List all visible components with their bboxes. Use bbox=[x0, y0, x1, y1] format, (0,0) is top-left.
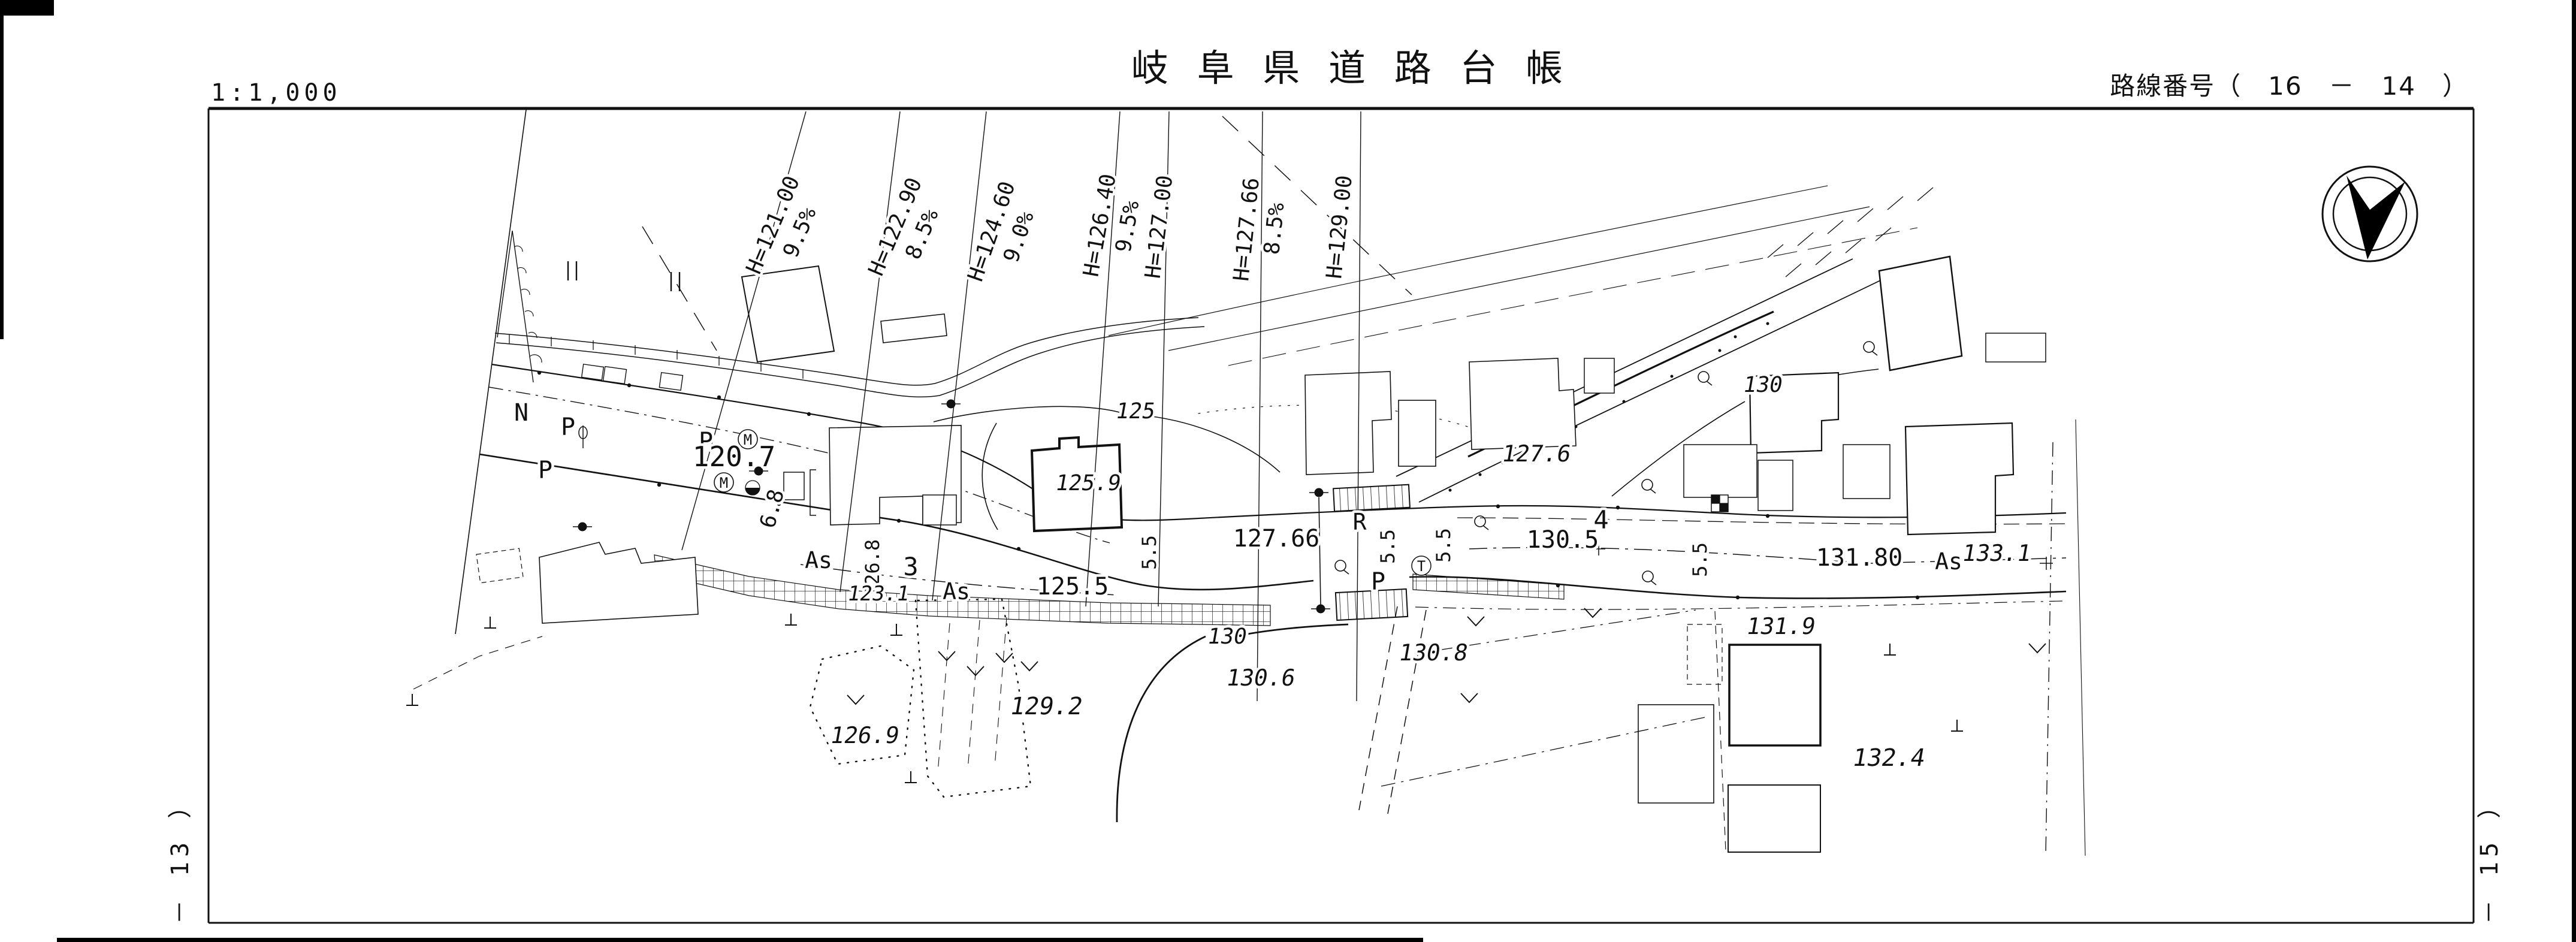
slope-hatching bbox=[1768, 188, 1933, 277]
spring-icon bbox=[1698, 372, 1709, 382]
catch-basin-icon bbox=[1711, 495, 1720, 503]
pole-icon bbox=[1315, 488, 1324, 497]
section-label: H=129.00 bbox=[1322, 174, 1357, 280]
paddy-mark-icon bbox=[568, 261, 576, 280]
road-annotation: P bbox=[561, 413, 575, 441]
bridge-rail-north bbox=[1333, 485, 1410, 512]
building bbox=[1758, 460, 1793, 511]
farm-road-edge-1 bbox=[1359, 606, 1397, 810]
spring-icon bbox=[1335, 560, 1346, 571]
contour-125 bbox=[934, 406, 1119, 422]
spot-elevation: 130 bbox=[1206, 623, 1249, 649]
road-annotation: 127.66 bbox=[1233, 525, 1320, 552]
monument-icon bbox=[484, 617, 496, 628]
spring-icon bbox=[1651, 581, 1656, 585]
parcel-line bbox=[1438, 610, 1696, 650]
road-annotation: As bbox=[1935, 548, 1962, 575]
building bbox=[742, 266, 834, 362]
spot-elevation: 131.9 bbox=[1744, 613, 1817, 640]
section-height: H=126.40 bbox=[1079, 172, 1121, 279]
spot-elevation: 126.9 bbox=[828, 722, 901, 749]
scan-mark-left-edge bbox=[0, 16, 4, 339]
building bbox=[603, 367, 627, 384]
catch-basin-icon bbox=[1720, 503, 1728, 512]
monument-icon bbox=[1884, 644, 1896, 655]
grassland-icon bbox=[996, 653, 1013, 662]
spot-elevation: 130.8 bbox=[1397, 639, 1470, 666]
valve-icon bbox=[745, 488, 760, 495]
building-bold bbox=[1729, 645, 1820, 745]
building bbox=[539, 542, 698, 623]
adjacent-sheet-right: － 15 ） bbox=[2476, 790, 2503, 924]
section-label: H=122.908.5% bbox=[864, 174, 953, 291]
spring-icon bbox=[1483, 526, 1488, 530]
section-line bbox=[932, 111, 986, 600]
section-label: H=127.00 bbox=[1141, 174, 1178, 280]
building bbox=[582, 364, 604, 381]
grassland-icon bbox=[2029, 644, 2046, 653]
road-annotation: 5.5 bbox=[1376, 529, 1399, 564]
route-number: 路線番号（ 16 － 14 ） bbox=[2110, 71, 2469, 101]
road-annotation: 5.5 bbox=[1689, 542, 1711, 577]
grassland-icon bbox=[1467, 617, 1484, 626]
building-tilted bbox=[1879, 256, 1962, 370]
section-label: H=124.609.0% bbox=[964, 179, 1047, 294]
building bbox=[1905, 423, 2013, 535]
section-grade: 8.5% bbox=[1260, 201, 1289, 256]
road-annotation: 6.8 bbox=[756, 487, 789, 530]
spring-icon bbox=[1642, 479, 1653, 490]
building bbox=[1843, 445, 1890, 499]
telephone-icon: T bbox=[1417, 558, 1426, 575]
parcel-line bbox=[413, 636, 542, 689]
scan-mark-bottom-edge bbox=[57, 938, 1423, 942]
road-annotation: 3 bbox=[903, 552, 918, 581]
scale-label: 1:1,000 bbox=[211, 79, 342, 107]
wall-band-east bbox=[1413, 574, 1564, 599]
section-grade: 9.5% bbox=[1111, 199, 1144, 255]
road-annotation: 131.80 bbox=[1816, 544, 1903, 572]
section-label: H=126.409.5% bbox=[1079, 172, 1148, 283]
spot-elevation: 125 bbox=[1114, 398, 1158, 424]
grassland-icon bbox=[847, 695, 864, 704]
contour-130-lower bbox=[1117, 636, 1206, 822]
road-annotation: 120.7 bbox=[693, 440, 775, 473]
monument-icon bbox=[1951, 720, 1963, 731]
road-annotation: 5.5 bbox=[1138, 535, 1161, 570]
spot-elevation: 123.1 bbox=[845, 582, 911, 606]
road-annotation: 5.5 bbox=[1432, 528, 1455, 563]
spring-icon bbox=[1343, 570, 1349, 574]
road-annotation: As bbox=[943, 578, 970, 605]
branch-road bbox=[497, 231, 533, 382]
spot-elevation: 132.4 bbox=[1850, 744, 1928, 772]
building bbox=[1584, 358, 1614, 393]
building bbox=[1986, 333, 2046, 362]
monument-icon bbox=[890, 624, 902, 635]
boundary-line-east-2 bbox=[2076, 419, 2085, 856]
parcels bbox=[413, 419, 2085, 856]
monument-icon bbox=[406, 694, 418, 705]
manhole-icon: M bbox=[720, 475, 728, 491]
pole-icon bbox=[947, 400, 956, 409]
grassland-icon bbox=[1021, 662, 1038, 671]
spot-elevation: 127.6 bbox=[1500, 440, 1573, 467]
section-height: H=129.00 bbox=[1322, 174, 1357, 280]
section-label: H=127.668.5% bbox=[1229, 176, 1292, 285]
road-lane-line bbox=[489, 387, 1110, 543]
building bbox=[1728, 785, 1820, 852]
section-height: H=127.66 bbox=[1229, 176, 1264, 282]
parcel-line bbox=[1715, 611, 1726, 851]
scan-mark-right-edge bbox=[2572, 0, 2576, 942]
wall-bracket bbox=[810, 470, 816, 515]
spring-icon bbox=[1864, 342, 1874, 352]
spot-elevation: 133.1 bbox=[1960, 540, 2033, 567]
sheet-boundary-line bbox=[455, 110, 526, 634]
road-annotation: As bbox=[805, 547, 832, 573]
spring-icon bbox=[1872, 351, 1877, 355]
monument-icon bbox=[905, 771, 917, 783]
spring-icon bbox=[1642, 571, 1653, 582]
road-annotation: 4 bbox=[1593, 505, 1608, 535]
building-dashed bbox=[476, 548, 523, 583]
road-annotation: P bbox=[1371, 568, 1385, 596]
sheet-title: 岐 阜 県 道 路 台 帳 bbox=[1131, 46, 1571, 90]
spot-elevation: 125.9 bbox=[1053, 470, 1123, 496]
building bbox=[1469, 358, 1576, 449]
pole-icon bbox=[1316, 605, 1325, 614]
building bbox=[659, 373, 682, 391]
building bbox=[1399, 400, 1436, 466]
road-ledger-sheet: 1:1,000 岐 阜 県 道 路 台 帳 路線番号（ 16 － 14 ） － … bbox=[0, 0, 2576, 942]
scan-artifacts bbox=[0, 0, 2576, 942]
north-arrow-icon bbox=[2323, 167, 2417, 261]
boundary-line-east bbox=[2046, 442, 2053, 856]
monument-icon bbox=[785, 614, 797, 625]
building bbox=[1638, 705, 1714, 803]
pole-icon bbox=[578, 523, 587, 532]
road-annotation: 130.5 bbox=[1527, 526, 1599, 554]
grassland-icon bbox=[1461, 693, 1478, 702]
road-annotation: N bbox=[514, 399, 529, 427]
road-annotation: R bbox=[1353, 509, 1367, 535]
building bbox=[923, 495, 956, 525]
spot-elevation: 130 bbox=[1741, 372, 1785, 397]
road-annotation: P bbox=[538, 457, 552, 484]
building bbox=[1305, 372, 1391, 475]
paddy-mark-icon bbox=[671, 272, 680, 291]
spring-icon bbox=[1707, 381, 1712, 385]
field-strips bbox=[938, 617, 1007, 773]
spring-icon bbox=[1650, 489, 1656, 493]
spot-elevation: 129.2 bbox=[1008, 692, 1085, 720]
adjacent-sheet-left: － 13 ） bbox=[167, 790, 194, 924]
building bbox=[881, 314, 947, 343]
spot-elevation: 130.6 bbox=[1224, 665, 1297, 692]
buildings bbox=[476, 256, 2046, 852]
map-canvas: 1:1,000 岐 阜 県 道 路 台 帳 路線番号（ 16 － 14 ） － … bbox=[0, 0, 2576, 942]
road-annotation: 125.5 bbox=[1037, 573, 1109, 600]
section-height: H=127.00 bbox=[1141, 174, 1178, 280]
scan-mark-top-left bbox=[0, 0, 54, 16]
building bbox=[1684, 445, 1757, 497]
